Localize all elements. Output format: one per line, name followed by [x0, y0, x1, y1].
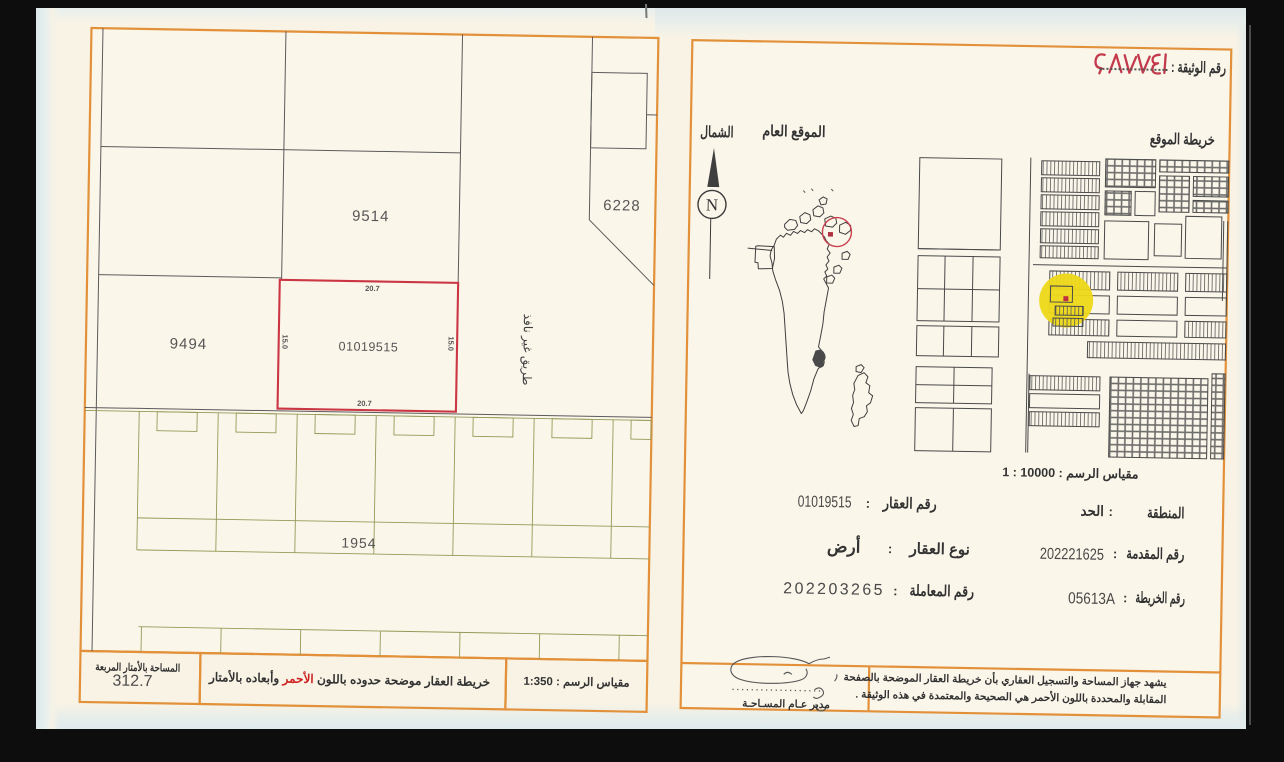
svg-text:N: N [706, 195, 719, 214]
